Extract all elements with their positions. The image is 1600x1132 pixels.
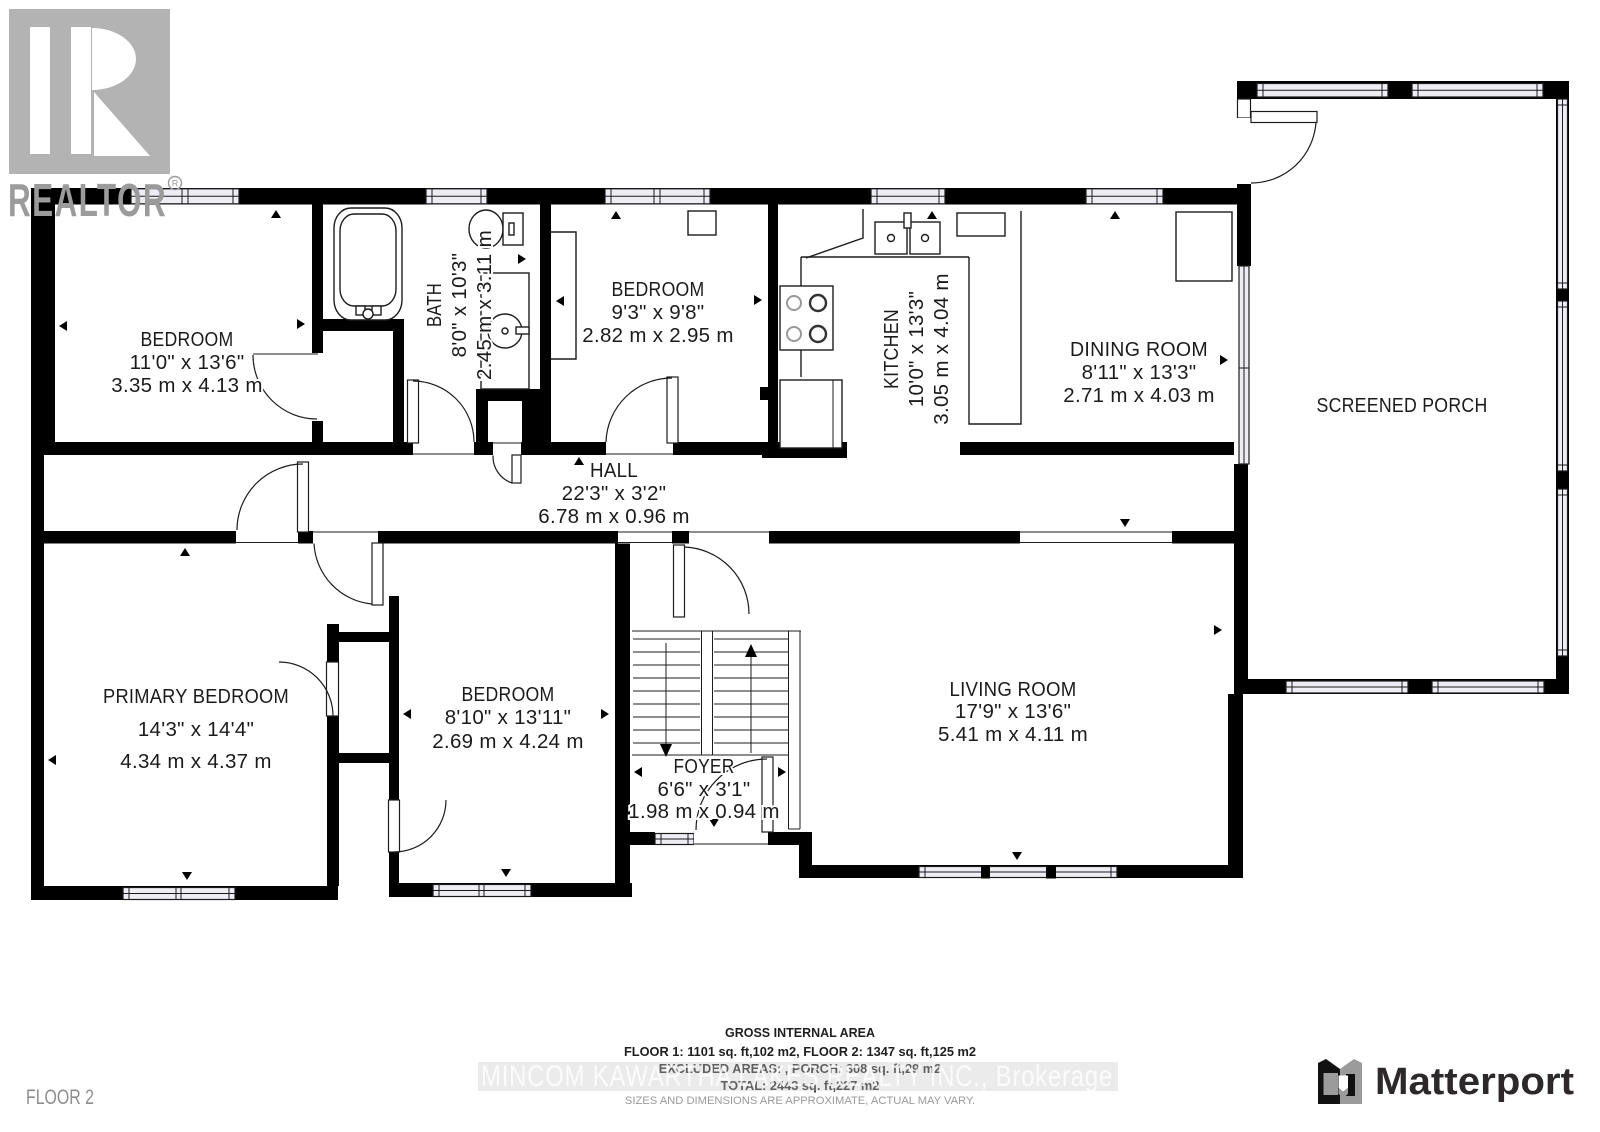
svg-text:9'3" x 9'8": 9'3" x 9'8"	[612, 301, 705, 324]
svg-text:FLOOR 1: 1101 sq. ft,102 m2, F: FLOOR 1: 1101 sq. ft,102 m2, FLOOR 2: 13…	[624, 1044, 976, 1059]
svg-text:22'3" x 3'2": 22'3" x 3'2"	[562, 482, 667, 505]
svg-text:2.82 m x 2.95 m: 2.82 m x 2.95 m	[582, 324, 733, 347]
svg-text:REALTOR: REALTOR	[8, 174, 167, 226]
svg-text:LIVING ROOM: LIVING ROOM	[950, 678, 1077, 701]
svg-text:FOYER: FOYER	[674, 755, 735, 778]
svg-text:8'10" x 13'11": 8'10" x 13'11"	[445, 706, 572, 729]
svg-text:SIZES AND DIMENSIONS ARE APPRO: SIZES AND DIMENSIONS ARE APPROXIMATE, AC…	[625, 1095, 975, 1107]
svg-text:R: R	[172, 179, 179, 189]
svg-text:6'6" x 3'1": 6'6" x 3'1"	[658, 778, 751, 801]
svg-text:FLOOR 2: FLOOR 2	[26, 1086, 94, 1109]
svg-text:1.98 m x 0.94 m: 1.98 m x 0.94 m	[628, 800, 779, 823]
svg-text:BEDROOM: BEDROOM	[612, 278, 705, 301]
svg-text:DINING ROOM: DINING ROOM	[1070, 338, 1208, 361]
svg-text:BEDROOM: BEDROOM	[141, 328, 234, 351]
svg-text:MINCOM KAWARTHA LAKES REALTY I: MINCOM KAWARTHA LAKES REALTY INC., Broke…	[481, 1060, 1113, 1093]
svg-text:KITCHEN: KITCHEN	[880, 309, 903, 389]
svg-text:5.41 m x 4.11 m: 5.41 m x 4.11 m	[938, 723, 1088, 746]
svg-text:3.35 m x 4.13 m: 3.35 m x 4.13 m	[111, 374, 262, 397]
svg-text:6.78 m x 0.96 m: 6.78 m x 0.96 m	[538, 505, 689, 528]
svg-text:GROSS INTERNAL AREA: GROSS INTERNAL AREA	[725, 1026, 875, 1040]
svg-text:2.69 m x 4.24 m: 2.69 m x 4.24 m	[432, 730, 583, 753]
svg-text:HALL: HALL	[590, 459, 638, 482]
svg-text:8'0" x 10'3": 8'0" x 10'3"	[448, 253, 471, 358]
svg-text:3.05 m x 4.04 m: 3.05 m x 4.04 m	[930, 273, 953, 424]
svg-text:BEDROOM: BEDROOM	[462, 683, 555, 706]
svg-text:11'0" x 13'6": 11'0" x 13'6"	[130, 351, 245, 374]
svg-text:14'3" x 14'4": 14'3" x 14'4"	[138, 718, 254, 741]
svg-text:2.71 m x 4.03 m: 2.71 m x 4.03 m	[1063, 384, 1214, 407]
svg-text:17'9" x 13'6": 17'9" x 13'6"	[955, 700, 1071, 723]
svg-text:10'0" x 13'3": 10'0" x 13'3"	[905, 291, 928, 407]
svg-text:Matterport: Matterport	[1375, 1061, 1574, 1103]
svg-text:2.45 m x 3.11 m: 2.45 m x 3.11 m	[473, 230, 496, 380]
svg-text:PRIMARY BEDROOM: PRIMARY BEDROOM	[103, 685, 289, 708]
svg-text:8'11" x 13'3": 8'11" x 13'3"	[1082, 361, 1197, 384]
svg-text:BATH: BATH	[423, 283, 446, 327]
svg-text:SCREENED PORCH: SCREENED PORCH	[1317, 394, 1488, 417]
svg-text:4.34 m x 4.37 m: 4.34 m x 4.37 m	[120, 750, 271, 773]
